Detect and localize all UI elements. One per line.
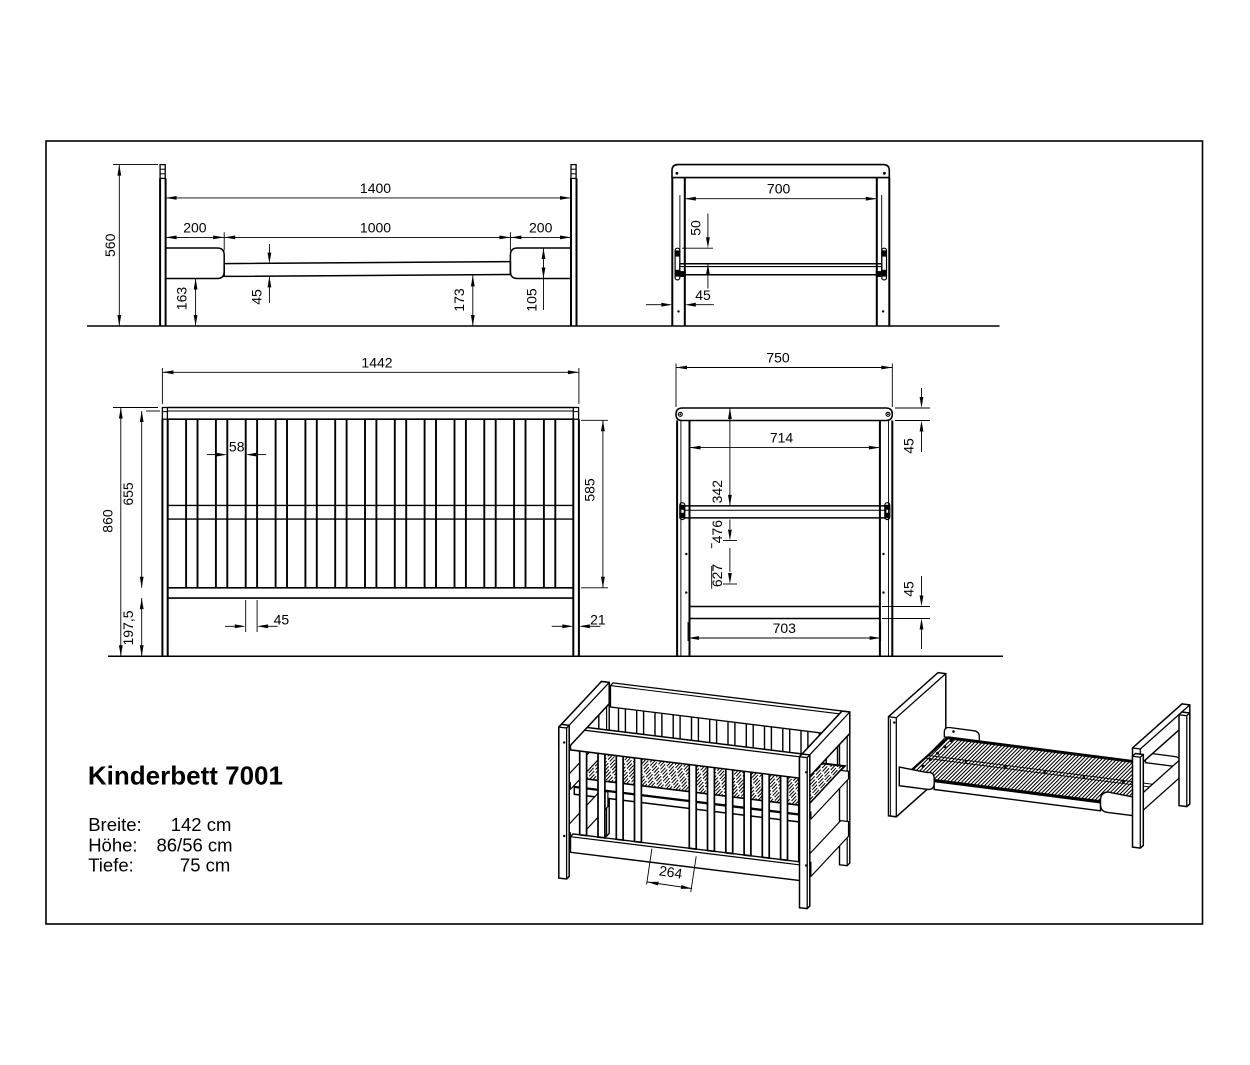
svg-text:560: 560 — [102, 233, 118, 257]
svg-text:700: 700 — [767, 181, 791, 197]
svg-text:197,5: 197,5 — [120, 610, 136, 645]
svg-text:45: 45 — [901, 438, 917, 454]
svg-text:Höhe:: Höhe: — [88, 834, 137, 855]
svg-text:Tiefe:: Tiefe: — [88, 855, 134, 876]
svg-text:45: 45 — [249, 289, 265, 305]
svg-text:655: 655 — [120, 482, 136, 506]
svg-text:45: 45 — [274, 611, 290, 627]
svg-text:163: 163 — [174, 287, 190, 311]
svg-text:714: 714 — [770, 430, 794, 446]
svg-text:45: 45 — [901, 581, 917, 597]
svg-text:173: 173 — [451, 288, 467, 312]
svg-text:Kinderbett 7001: Kinderbett 7001 — [88, 761, 283, 791]
svg-text:21: 21 — [590, 611, 606, 627]
svg-text:200: 200 — [529, 219, 553, 235]
svg-text:1442: 1442 — [361, 354, 392, 370]
svg-text:75 cm: 75 cm — [180, 855, 230, 876]
svg-text:58: 58 — [229, 439, 245, 455]
svg-text:1000: 1000 — [360, 219, 391, 235]
svg-text:1400: 1400 — [360, 180, 391, 196]
svg-text:105: 105 — [524, 288, 540, 312]
svg-text:142 cm: 142 cm — [171, 814, 232, 835]
svg-text:200: 200 — [183, 219, 207, 235]
svg-text:342: 342 — [709, 480, 725, 504]
svg-text:86/56 cm: 86/56 cm — [156, 834, 232, 855]
svg-text:750: 750 — [766, 350, 790, 366]
svg-text:860: 860 — [99, 509, 115, 533]
svg-text:703: 703 — [773, 620, 797, 636]
svg-text:45: 45 — [695, 287, 711, 303]
svg-text:585: 585 — [581, 478, 597, 502]
svg-text:Breite:: Breite: — [88, 814, 141, 835]
svg-text:476: 476 — [709, 520, 725, 544]
svg-text:50: 50 — [687, 220, 703, 236]
